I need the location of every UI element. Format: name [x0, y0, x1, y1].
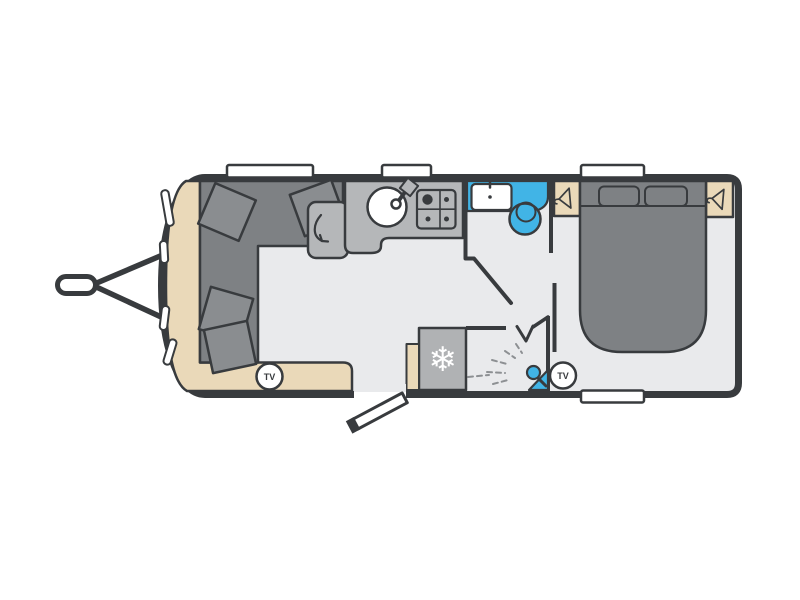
- tv-label: TV: [557, 371, 569, 381]
- snowflake-icon: ❄: [428, 340, 457, 380]
- window: [382, 165, 431, 178]
- hitch-coupling: [58, 277, 96, 294]
- door-opening: [354, 384, 406, 392]
- window: [581, 391, 644, 403]
- tv-badge-lounge: TV: [257, 364, 283, 390]
- tv-label: TV: [264, 372, 276, 382]
- burner: [444, 197, 449, 202]
- tv-badge-bedroom: TV: [550, 363, 576, 389]
- wardrobe-left: [553, 181, 580, 216]
- fridge: ❄: [419, 328, 466, 390]
- basin-drain: [488, 195, 492, 199]
- entrance-door: [346, 384, 408, 434]
- front-window-strip: [161, 190, 175, 227]
- hob: [417, 190, 456, 229]
- floorplan-canvas: ❄ TV TV: [0, 0, 800, 600]
- island-bed: [580, 181, 706, 352]
- front-window-strip: [160, 241, 169, 263]
- door-side-trim: [407, 344, 420, 390]
- seat-cushion: [204, 321, 256, 373]
- caravan-floorplan: ❄ TV TV: [0, 0, 800, 600]
- tow-hitch: [58, 251, 173, 322]
- swivel-seat: [308, 202, 348, 258]
- wardrobe-right: [706, 181, 733, 217]
- pillow: [645, 187, 687, 207]
- toilet-icon: [510, 204, 541, 235]
- window: [581, 165, 644, 178]
- pillow: [599, 187, 639, 207]
- tap-base: [392, 200, 401, 209]
- burner: [426, 217, 431, 222]
- front-window-strip: [159, 306, 169, 331]
- burner: [422, 194, 432, 204]
- burner: [444, 217, 449, 222]
- shower-head-icon: [527, 366, 540, 379]
- window: [227, 165, 313, 178]
